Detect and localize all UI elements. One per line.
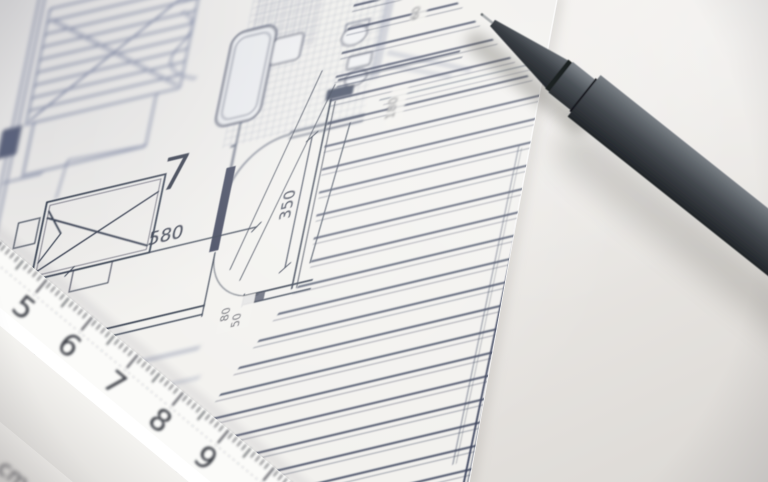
vignette xyxy=(0,0,768,482)
photo-blueprint-scene: 350 580 7 xyxy=(0,0,768,482)
scene-canvas: 350 580 7 xyxy=(0,0,768,482)
